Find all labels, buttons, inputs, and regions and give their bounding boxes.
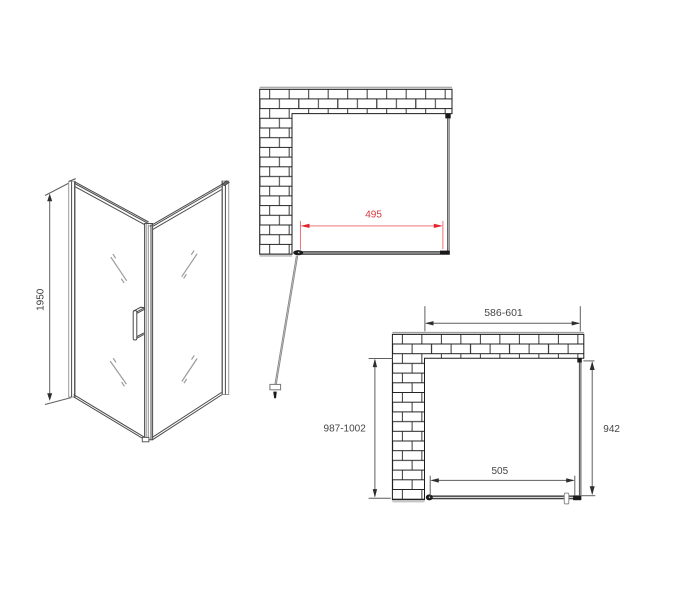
svg-text:495: 495 <box>365 209 382 220</box>
svg-text:942: 942 <box>603 424 620 435</box>
svg-text:1950: 1950 <box>35 288 46 311</box>
svg-text:505: 505 <box>491 466 508 477</box>
svg-text:586-601: 586-601 <box>484 307 523 319</box>
svg-text:987-1002: 987-1002 <box>324 424 367 435</box>
